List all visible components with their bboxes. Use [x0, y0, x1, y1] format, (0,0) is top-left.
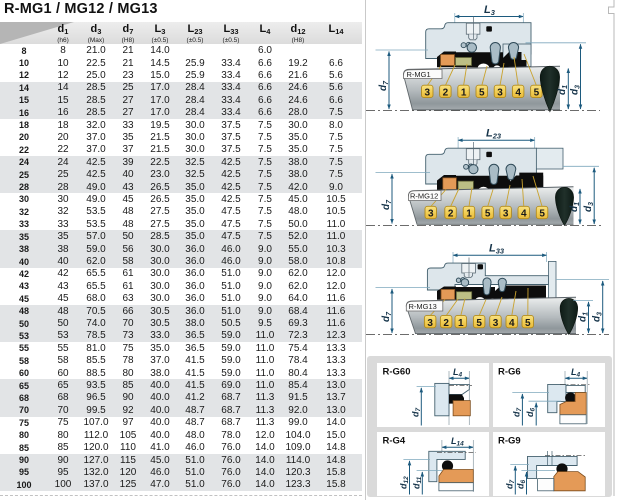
svg-text:d3: d3: [583, 202, 595, 212]
svg-text:4: 4: [515, 88, 521, 99]
svg-text:L33: L33: [489, 243, 505, 256]
svg-text:5: 5: [479, 88, 485, 99]
svg-text:1: 1: [461, 88, 467, 99]
svg-text:R-G9: R-G9: [498, 436, 521, 447]
svg-text:3: 3: [493, 318, 499, 329]
svg-text:d7: d7: [378, 80, 390, 91]
svg-text:3: 3: [503, 209, 509, 220]
svg-text:d7: d7: [381, 199, 393, 210]
svg-text:R-G60: R-G60: [383, 367, 411, 378]
svg-text:5: 5: [476, 318, 482, 329]
svg-text:2: 2: [448, 209, 454, 220]
svg-text:d3: d3: [592, 312, 604, 322]
svg-text:5: 5: [485, 209, 491, 220]
svg-text:R-G4: R-G4: [383, 436, 406, 447]
svg-text:R-MG1: R-MG1: [407, 70, 431, 79]
svg-text:1: 1: [458, 318, 464, 329]
svg-text:4: 4: [521, 209, 527, 220]
svg-text:5: 5: [539, 209, 545, 220]
svg-text:2: 2: [443, 318, 449, 329]
svg-text:d3: d3: [570, 85, 582, 95]
svg-text:3: 3: [497, 88, 503, 99]
svg-text:3: 3: [425, 88, 431, 99]
svg-text:5: 5: [525, 318, 531, 329]
svg-text:R-MG12: R-MG12: [410, 192, 438, 201]
svg-text:4: 4: [509, 318, 515, 329]
svg-text:3: 3: [427, 318, 433, 329]
svg-text:d1: d1: [578, 312, 590, 322]
svg-text:L23: L23: [486, 128, 502, 141]
svg-text:L3: L3: [484, 4, 496, 17]
svg-text:R-MG13: R-MG13: [409, 302, 437, 311]
svg-text:5: 5: [534, 88, 540, 99]
svg-text:1: 1: [466, 209, 472, 220]
svg-text:2: 2: [443, 88, 449, 99]
svg-text:3: 3: [428, 209, 434, 220]
svg-text:R-G6: R-G6: [498, 367, 521, 378]
svg-text:d7: d7: [381, 311, 393, 322]
